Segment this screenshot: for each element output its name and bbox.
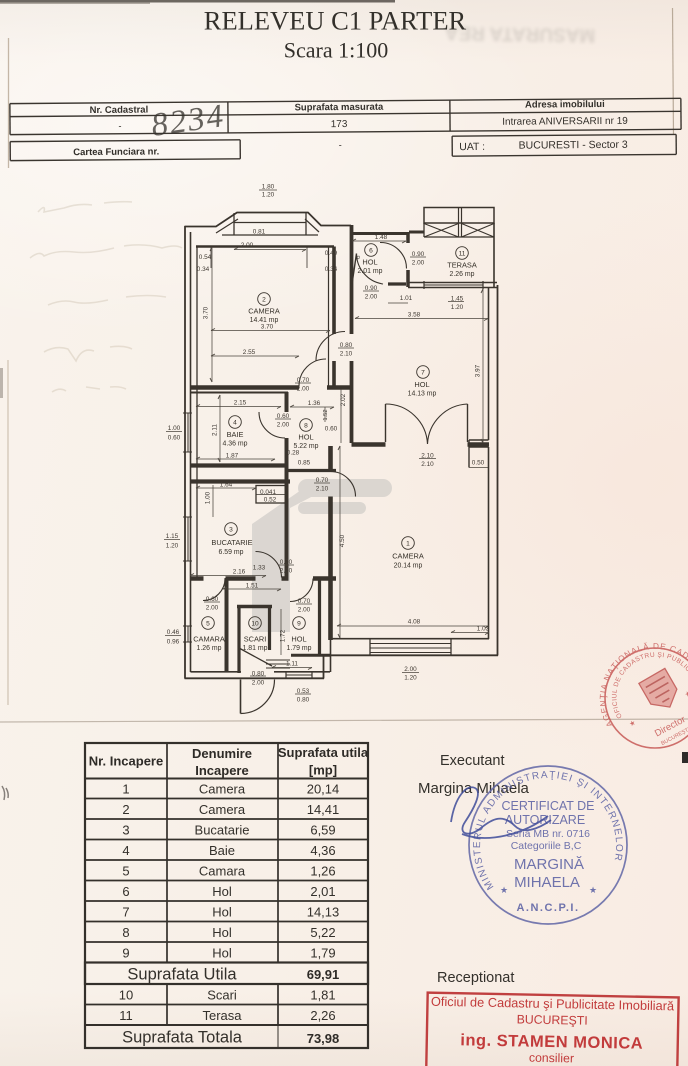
svg-text:4: 4	[122, 843, 129, 858]
svg-text:2.16: 2.16	[233, 569, 246, 576]
svg-text:1.20: 1.20	[404, 675, 417, 682]
svg-text:5: 5	[206, 621, 210, 628]
svg-text:5: 5	[122, 864, 129, 879]
svg-text:0.60: 0.60	[168, 435, 181, 442]
svg-text:1.20: 1.20	[451, 304, 464, 311]
svg-text:11: 11	[459, 251, 466, 258]
svg-text:1.20: 1.20	[262, 192, 275, 199]
svg-text:Hol: Hol	[212, 884, 232, 899]
svg-text:RELEVEU C1 PARTER: RELEVEU C1 PARTER	[204, 6, 467, 36]
svg-text:0.70: 0.70	[297, 377, 310, 384]
svg-text:1.48: 1.48	[375, 234, 388, 241]
svg-text:73,98: 73,98	[307, 1031, 340, 1046]
svg-text:BAIE: BAIE	[227, 430, 244, 439]
svg-text:Hol: Hol	[212, 946, 232, 961]
svg-text:8: 8	[122, 925, 129, 940]
svg-text:Suprafata masurata: Suprafata masurata	[295, 102, 385, 114]
svg-text:1.03: 1.03	[477, 626, 490, 633]
svg-text:9: 9	[122, 946, 129, 961]
svg-text:1.00: 1.00	[168, 425, 181, 432]
svg-text:Baie: Baie	[209, 843, 235, 858]
svg-text:0.70: 0.70	[280, 559, 293, 566]
svg-text:0.34: 0.34	[197, 266, 210, 273]
svg-text:Bucatarie: Bucatarie	[195, 823, 250, 838]
svg-text:0.53: 0.53	[297, 688, 310, 695]
svg-text:1.45: 1.45	[451, 296, 464, 303]
svg-text:3.97: 3.97	[475, 364, 482, 377]
svg-text:Incapere: Incapere	[195, 763, 248, 778]
svg-text:3.70: 3.70	[261, 324, 274, 331]
svg-text:Hol: Hol	[212, 925, 232, 940]
svg-text:6: 6	[122, 884, 129, 899]
svg-text:UAT :: UAT :	[459, 141, 485, 153]
svg-text:Suprafata Utila: Suprafata Utila	[127, 966, 237, 984]
svg-text:Camera: Camera	[199, 782, 246, 797]
svg-text:0.80: 0.80	[252, 671, 265, 678]
svg-text:A.N.C.P.I.: A.N.C.P.I.	[516, 902, 579, 914]
svg-text:0.80: 0.80	[297, 697, 310, 704]
svg-text:0.96: 0.96	[167, 639, 180, 646]
svg-text:MARGINĂ: MARGINĂ	[514, 856, 584, 873]
svg-text:0.90: 0.90	[412, 251, 425, 258]
svg-text:2.00: 2.00	[241, 242, 254, 249]
svg-text:69,91: 69,91	[307, 967, 340, 982]
svg-text:1: 1	[122, 782, 129, 797]
svg-text:consilier: consilier	[529, 1051, 574, 1066]
svg-text:0.80: 0.80	[340, 342, 353, 349]
svg-text:Nr. Cadastral: Nr. Cadastral	[90, 105, 149, 116]
svg-text:1.87: 1.87	[226, 453, 239, 460]
svg-text:14.41 mp: 14.41 mp	[250, 317, 279, 324]
svg-text:Receptionat: Receptionat	[437, 970, 514, 986]
svg-text:2.55: 2.55	[243, 349, 256, 356]
svg-text:0.60: 0.60	[277, 413, 290, 420]
svg-text:2.26 mp: 2.26 mp	[450, 271, 475, 278]
svg-text:★: ★	[628, 719, 637, 729]
svg-text:6.59 mp: 6.59 mp	[219, 549, 244, 556]
svg-text:Denumire: Denumire	[192, 746, 252, 761]
svg-text:8: 8	[304, 423, 308, 430]
svg-text:HOL: HOL	[414, 380, 429, 389]
svg-text:11: 11	[119, 1008, 133, 1023]
svg-text:Adresa imobilului: Adresa imobilului	[525, 99, 605, 111]
svg-text:0.34: 0.34	[325, 266, 338, 273]
svg-text:4.50: 4.50	[339, 534, 346, 547]
svg-text:3: 3	[229, 527, 233, 534]
svg-text:Intrarea ANIVERSARII nr 19: Intrarea ANIVERSARII nr 19	[502, 116, 628, 128]
svg-text:1.64: 1.64	[220, 482, 233, 489]
svg-text:6: 6	[369, 248, 373, 255]
svg-text:2.00: 2.00	[280, 568, 293, 575]
svg-text:CAMARA: CAMARA	[193, 635, 225, 644]
svg-text:2,01: 2,01	[310, 884, 335, 899]
svg-text:1.26 mp: 1.26 mp	[197, 645, 222, 652]
svg-text:0.52: 0.52	[264, 497, 277, 504]
svg-text:3.70: 3.70	[203, 306, 210, 319]
svg-text:2.02: 2.02	[340, 393, 347, 406]
svg-text:Camera: Camera	[199, 802, 246, 817]
svg-text:1,79: 1,79	[310, 946, 335, 961]
svg-text:★: ★	[683, 689, 688, 699]
svg-text:1,26: 1,26	[310, 864, 335, 879]
svg-text:2.00: 2.00	[206, 605, 219, 612]
svg-text:HOL: HOL	[291, 635, 306, 644]
svg-text:Hol: Hol	[212, 905, 232, 920]
svg-text:MIHAELA: MIHAELA	[514, 874, 580, 891]
svg-text:6,59: 6,59	[310, 823, 335, 838]
svg-text:3.58: 3.58	[408, 312, 421, 319]
svg-text:10: 10	[119, 988, 133, 1003]
svg-text:2.00: 2.00	[277, 422, 290, 429]
svg-text:TERASA: TERASA	[447, 261, 477, 270]
svg-text:14,13: 14,13	[307, 905, 340, 920]
svg-text:1.01: 1.01	[400, 295, 413, 302]
svg-text:4: 4	[233, 420, 237, 427]
svg-text:2.00: 2.00	[252, 680, 265, 687]
svg-text:HOL: HOL	[298, 433, 313, 442]
svg-text:4,36: 4,36	[310, 843, 335, 858]
svg-text:-: -	[339, 140, 342, 150]
svg-text:0.70: 0.70	[298, 598, 311, 605]
svg-text:0.28: 0.28	[287, 450, 300, 457]
svg-text:Categoriile B,C: Categoriile B,C	[511, 840, 582, 852]
svg-text:20,14: 20,14	[307, 782, 340, 797]
svg-text:1.80: 1.80	[262, 184, 275, 191]
svg-text:0.60: 0.60	[206, 596, 219, 603]
svg-text:2.00: 2.00	[404, 666, 417, 673]
svg-text:Nr. Incapere: Nr. Incapere	[89, 754, 163, 769]
svg-text:1.15: 1.15	[166, 533, 179, 540]
svg-text:R: R	[354, 255, 360, 259]
svg-text:2,26: 2,26	[310, 1008, 335, 1023]
svg-text:5.22 mp: 5.22 mp	[294, 443, 319, 450]
svg-text:0.50: 0.50	[472, 460, 485, 467]
svg-text:[mp]: [mp]	[309, 763, 337, 778]
svg-text:1.33: 1.33	[253, 565, 266, 572]
svg-text:173: 173	[331, 119, 348, 130]
svg-text:0.81: 0.81	[253, 229, 266, 236]
svg-text:2.10: 2.10	[421, 453, 434, 460]
svg-text:SCARI: SCARI	[244, 635, 267, 644]
svg-text:0.041: 0.041	[260, 489, 276, 496]
svg-text:0.70: 0.70	[316, 477, 329, 484]
svg-text:2: 2	[262, 297, 266, 304]
svg-text:Suprafata utila: Suprafata utila	[278, 745, 369, 760]
svg-text:4.08: 4.08	[408, 619, 421, 626]
svg-text:4.36 mp: 4.36 mp	[223, 441, 248, 448]
svg-text:Suprafata Totala: Suprafata Totala	[122, 1029, 243, 1047]
svg-text:Terasa: Terasa	[202, 1008, 242, 1023]
svg-text:10: 10	[251, 621, 259, 628]
svg-text:Seria MB nr. 0716: Seria MB nr. 0716	[506, 828, 590, 840]
svg-text:Camara: Camara	[199, 864, 246, 879]
svg-text:2.10: 2.10	[421, 461, 434, 468]
svg-text:2.00: 2.00	[297, 386, 310, 393]
svg-text:1.36: 1.36	[308, 400, 321, 407]
svg-text:BUCURESTI - Sector 3: BUCURESTI - Sector 3	[519, 139, 628, 152]
svg-text:0.60: 0.60	[325, 426, 338, 433]
svg-text:2.15: 2.15	[234, 400, 247, 407]
svg-text:BUCATARIE: BUCATARIE	[211, 538, 252, 547]
svg-text:1.72: 1.72	[280, 629, 287, 642]
svg-text:-: -	[118, 121, 121, 131]
svg-text:20.14 mp: 20.14 mp	[394, 563, 423, 570]
svg-text:2.01 mp: 2.01 mp	[358, 268, 383, 275]
svg-text:14.13 mp: 14.13 mp	[408, 391, 437, 398]
svg-text:1.00: 1.00	[205, 491, 212, 504]
svg-text:2.00: 2.00	[412, 260, 425, 267]
svg-text:1,81: 1,81	[310, 988, 335, 1003]
svg-text:14,41: 14,41	[307, 802, 340, 817]
svg-text:2.10: 2.10	[340, 351, 353, 358]
svg-text:9: 9	[297, 621, 301, 628]
svg-text:Scara 1:100: Scara 1:100	[284, 38, 388, 63]
svg-text:ing. STAMEN MONICA: ing. STAMEN MONICA	[460, 1031, 643, 1053]
svg-text:1: 1	[406, 541, 410, 548]
svg-text:1.51: 1.51	[246, 583, 259, 590]
svg-text:Cartea Funciara nr.: Cartea Funciara nr.	[73, 146, 159, 158]
svg-text:7: 7	[421, 370, 425, 377]
svg-text:2.00: 2.00	[365, 294, 378, 301]
svg-text:1.20: 1.20	[166, 543, 179, 550]
svg-text:CAMERA: CAMERA	[392, 552, 424, 561]
svg-text:★: ★	[589, 885, 597, 895]
svg-text:2.11: 2.11	[212, 424, 219, 436]
svg-text:7: 7	[122, 905, 129, 920]
svg-text:1.11: 1.11	[286, 661, 298, 668]
svg-text:CAMERA: CAMERA	[248, 307, 280, 316]
svg-text:5,22: 5,22	[310, 925, 335, 940]
svg-text:0.46: 0.46	[167, 629, 180, 636]
svg-text:8234: 8234	[149, 98, 227, 144]
svg-text:BUCUREŞTI: BUCUREŞTI	[517, 1012, 588, 1027]
svg-text:2: 2	[122, 802, 129, 817]
svg-text:HOL: HOL	[362, 258, 377, 267]
svg-text:2.00: 2.00	[298, 607, 311, 614]
svg-text:Executant: Executant	[440, 753, 505, 769]
svg-text:1.79 mp: 1.79 mp	[287, 645, 312, 652]
svg-text:1.81 mp: 1.81 mp	[243, 645, 268, 652]
svg-text:★: ★	[500, 885, 508, 895]
svg-text:1.52: 1.52	[323, 409, 329, 420]
svg-text:0.90: 0.90	[365, 285, 378, 292]
svg-text:MASURATA REA: MASURATA REA	[444, 22, 595, 46]
svg-text:2.10: 2.10	[316, 486, 329, 493]
svg-text:Scari: Scari	[207, 988, 237, 1003]
svg-text:0.85: 0.85	[298, 460, 311, 467]
svg-text:0.49: 0.49	[325, 250, 338, 257]
svg-text:0.54: 0.54	[199, 254, 212, 261]
svg-text:3: 3	[122, 823, 129, 838]
svg-text:CERTIFICAT DE: CERTIFICAT DE	[501, 799, 594, 813]
